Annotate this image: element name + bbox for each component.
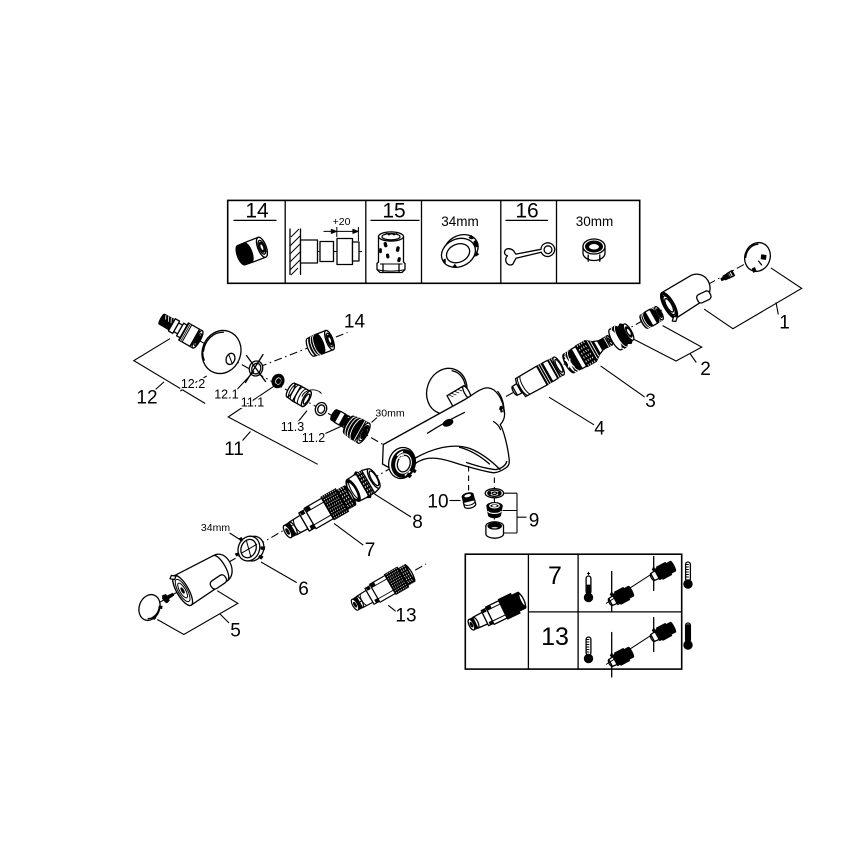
svg-text:13: 13 bbox=[541, 623, 569, 651]
svg-text:11.2: 11.2 bbox=[302, 431, 325, 445]
svg-text:12: 12 bbox=[136, 388, 157, 409]
svg-text:15: 15 bbox=[382, 200, 405, 223]
svg-text:11.1: 11.1 bbox=[241, 396, 264, 410]
svg-text:11: 11 bbox=[224, 439, 244, 460]
svg-text:14: 14 bbox=[344, 312, 366, 333]
svg-text:4: 4 bbox=[594, 419, 605, 440]
svg-text:+20: +20 bbox=[333, 216, 351, 228]
svg-text:8: 8 bbox=[412, 512, 423, 533]
svg-text:1: 1 bbox=[779, 313, 790, 334]
svg-text:5: 5 bbox=[230, 621, 241, 642]
svg-text:6: 6 bbox=[298, 579, 309, 600]
svg-text:3: 3 bbox=[645, 391, 656, 412]
svg-text:10: 10 bbox=[427, 492, 448, 513]
svg-text:7: 7 bbox=[548, 562, 562, 590]
svg-text:16: 16 bbox=[515, 200, 538, 223]
svg-text:9: 9 bbox=[529, 511, 540, 532]
svg-text:2: 2 bbox=[700, 359, 711, 380]
svg-text:30mm: 30mm bbox=[576, 214, 614, 229]
svg-text:30mm: 30mm bbox=[375, 408, 404, 420]
svg-text:14: 14 bbox=[245, 200, 269, 223]
svg-text:34mm: 34mm bbox=[441, 214, 479, 229]
svg-text:12.1: 12.1 bbox=[214, 388, 238, 402]
svg-text:12.2: 12.2 bbox=[181, 377, 205, 391]
svg-text:11.3: 11.3 bbox=[281, 420, 304, 434]
svg-text:13: 13 bbox=[395, 606, 416, 627]
svg-text:7: 7 bbox=[365, 540, 376, 561]
svg-text:34mm: 34mm bbox=[201, 522, 230, 534]
